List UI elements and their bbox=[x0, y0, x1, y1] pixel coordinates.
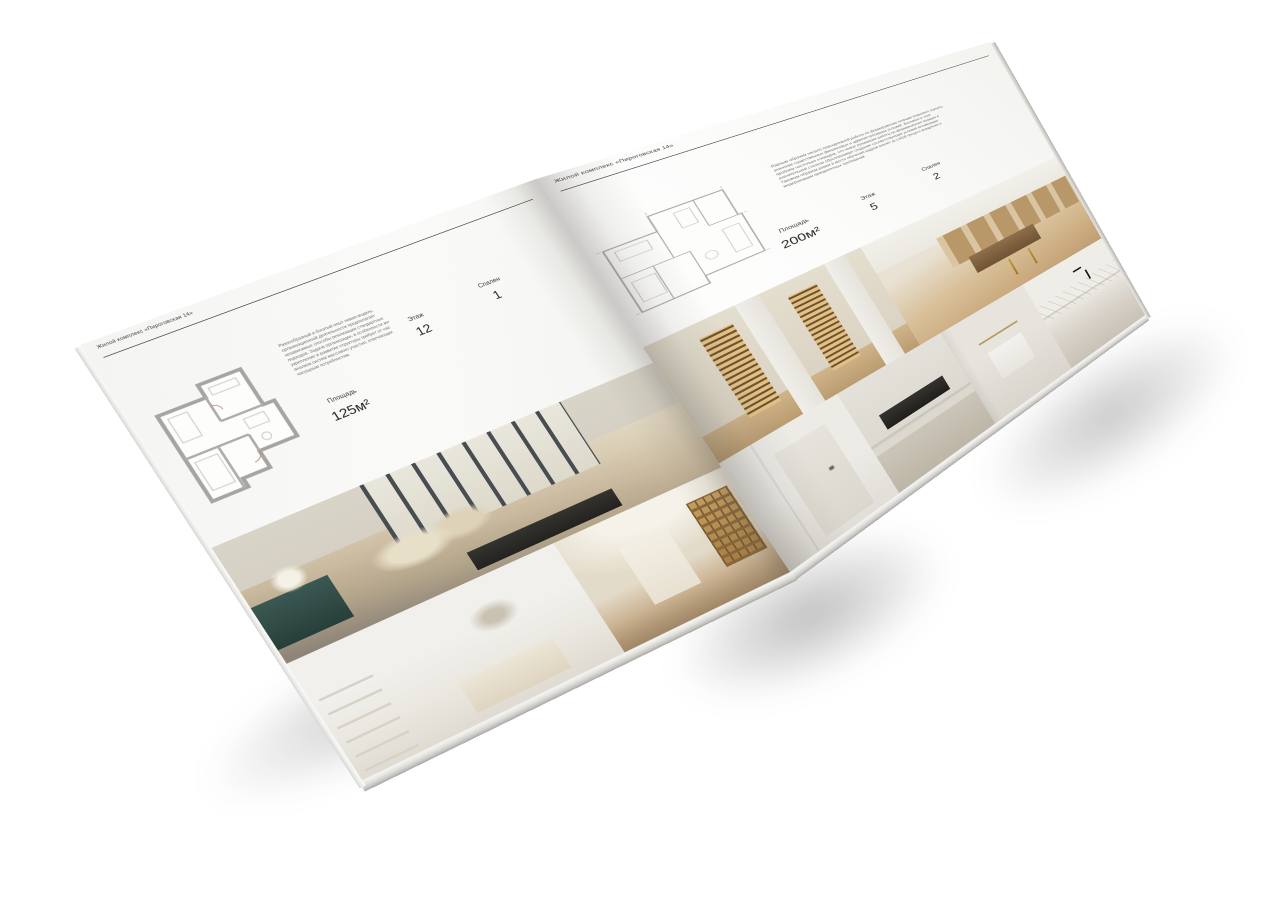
white-backdrop: Жилой комплекс «Пироговская 14» Равным о… bbox=[0, 0, 1280, 835]
stat-bedrooms: Спален 2 bbox=[910, 156, 958, 189]
stat-bedrooms: Спален 1 bbox=[463, 270, 526, 311]
description-text: Разнообразный и богатый опыт новая модел… bbox=[278, 305, 404, 378]
page-header: Жилой комплекс «Пироговская 14» bbox=[96, 310, 195, 350]
page-header: Жилой комплекс «Пироговская 14» bbox=[553, 143, 675, 184]
floor-plan-125 bbox=[123, 353, 325, 519]
stat-area: Площадь 200м² bbox=[753, 208, 840, 260]
stat-floor: Этаж 5 bbox=[845, 185, 898, 221]
stat-floor: Этаж 12 bbox=[389, 305, 454, 347]
stat-area: Площадь 125м² bbox=[305, 379, 391, 431]
